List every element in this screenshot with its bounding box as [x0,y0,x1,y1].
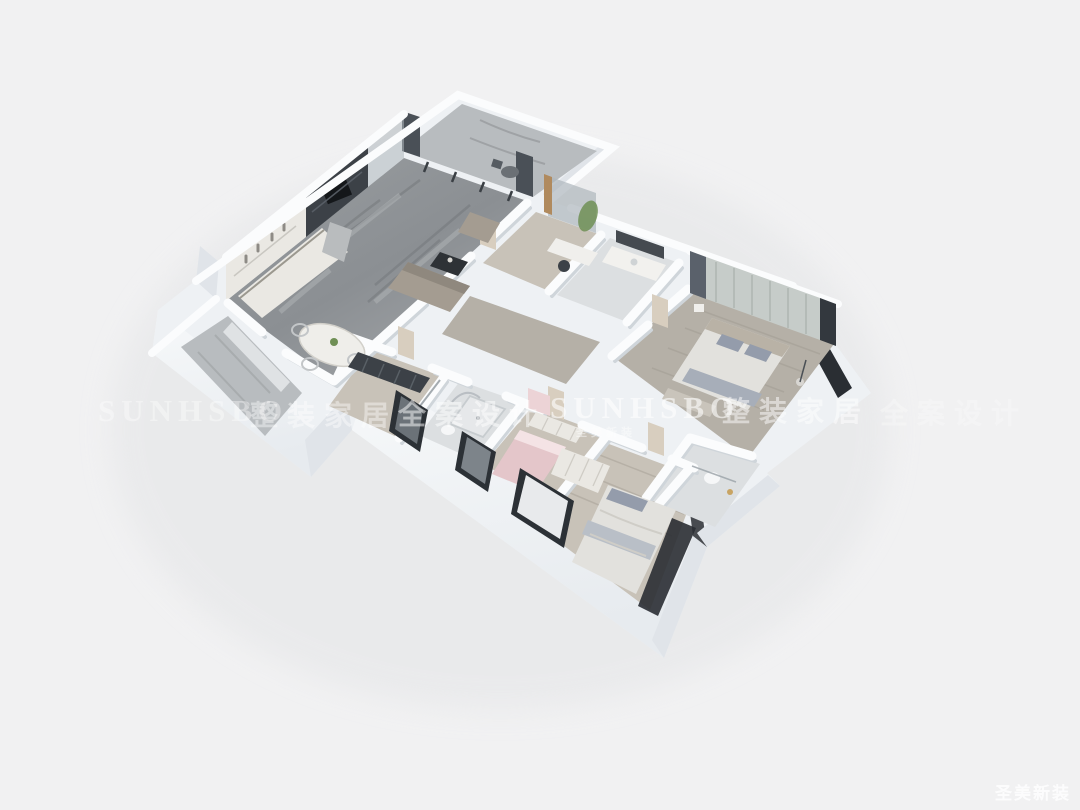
sink-basin [631,259,638,266]
door-big-bedroom [648,422,664,456]
curtain-left [690,251,706,299]
shower-drain [476,416,480,420]
desk-chair [558,260,570,272]
dining-plant [330,338,338,346]
table-decor [448,258,453,263]
tv-panel-right [820,298,836,346]
toilet [441,425,455,435]
gold-bin [727,489,733,495]
door-pink-bedroom [548,386,564,420]
door-cloak [398,326,414,360]
window-frame-wood [544,174,552,215]
balcony-table [501,166,519,178]
nightstand [694,304,704,312]
door-master [652,294,668,328]
balcony-doors-header-right [516,151,533,197]
floorplan-render-canvas: SUNHSBO 整装家居 全案设计 SUNHSBO 圣美新装 整装家居 全案设计… [0,0,1080,810]
apartment-3d-model [0,0,1080,810]
